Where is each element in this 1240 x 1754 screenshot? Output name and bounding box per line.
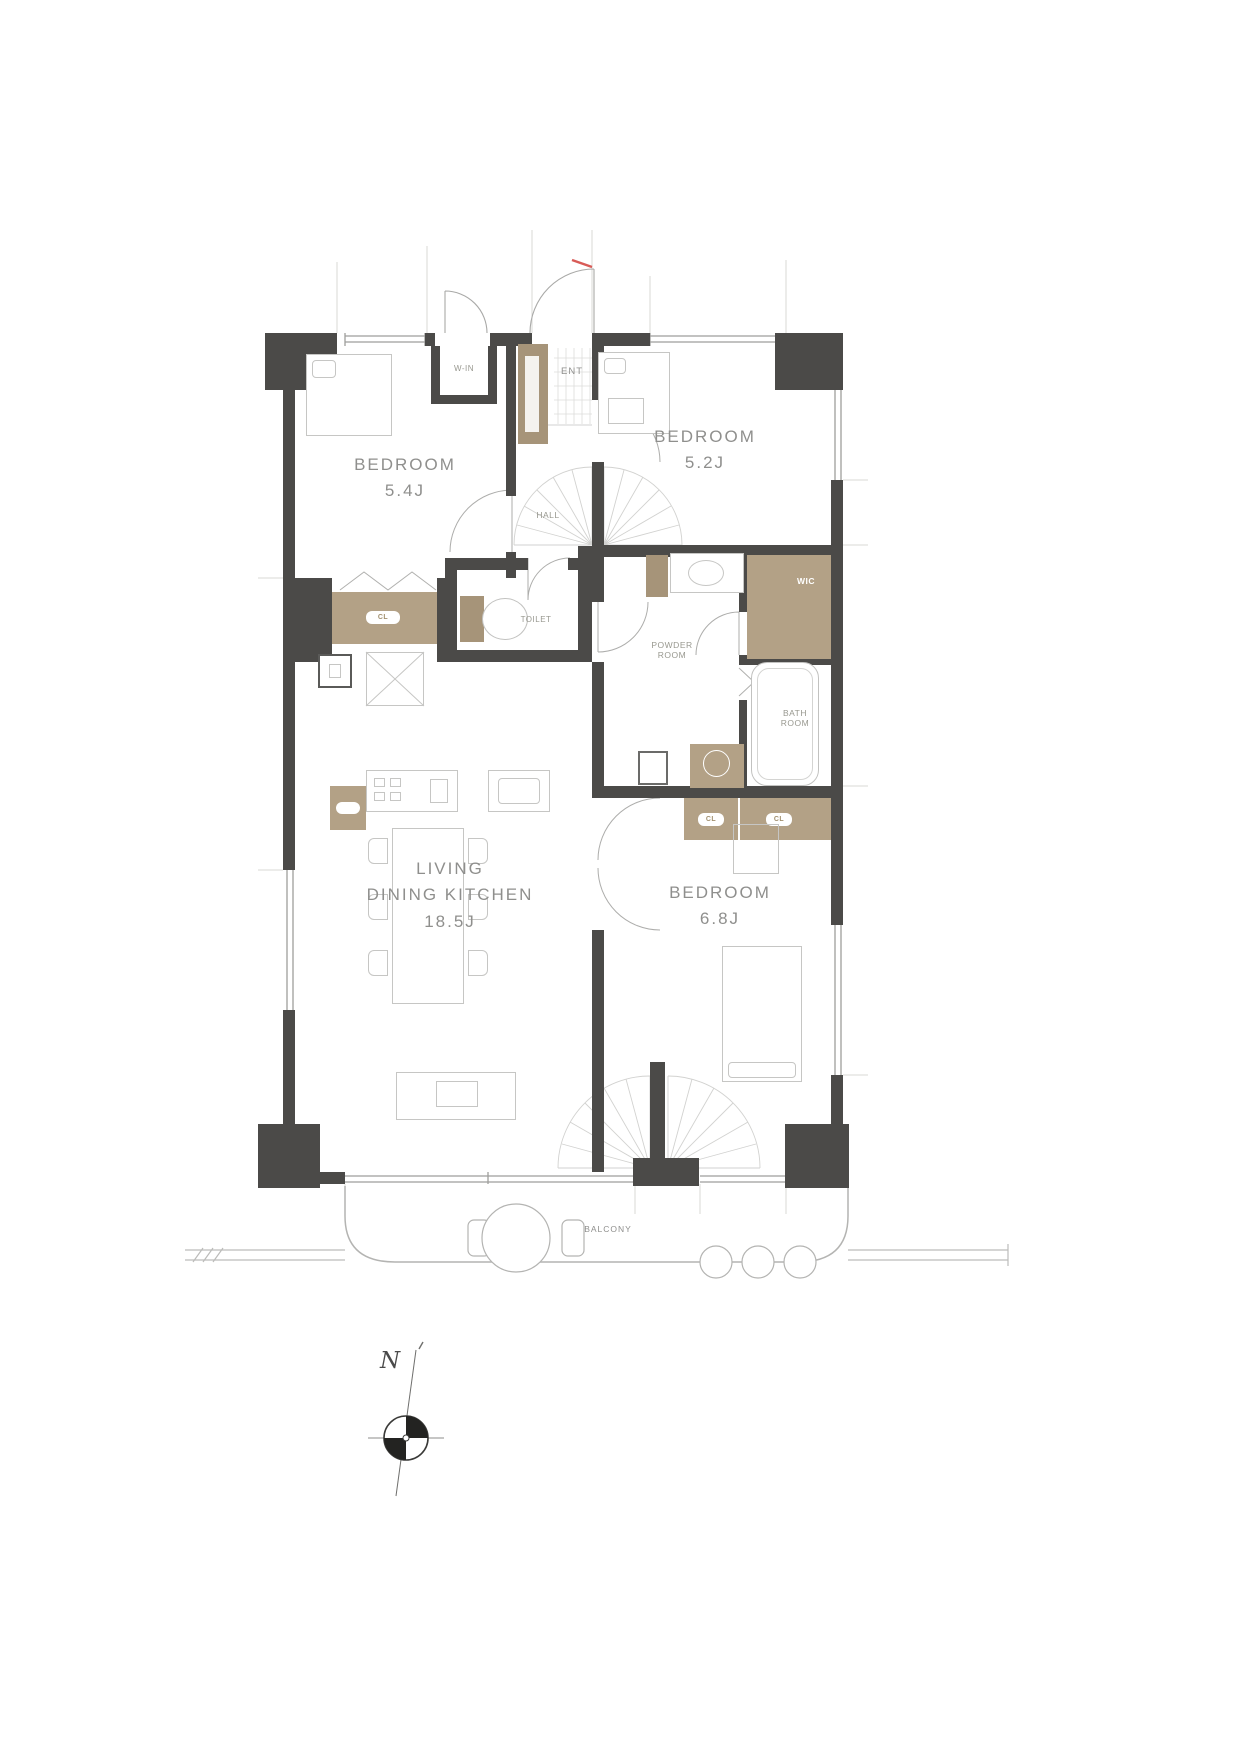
entrance-door-accent [572, 260, 592, 267]
wall-toilet-top-b [568, 558, 578, 570]
wall-center-mid [592, 462, 604, 558]
meter-box-inner [329, 664, 341, 678]
wall-block-left [283, 578, 332, 662]
walk-in-storage-label: W-IN [436, 364, 492, 374]
shoe-cabinet-strip [525, 356, 539, 432]
pillow-bedroom-c [728, 1062, 796, 1078]
bedroom-c-label: BEDROOM 6.8J [645, 880, 795, 933]
wall-ldk-powder [592, 662, 604, 786]
plan-linework [0, 0, 1240, 1754]
toilet-tank [460, 596, 484, 642]
closet-c1-label: CL [698, 813, 724, 826]
desk-bedroom-b [608, 398, 644, 424]
powder-room-line2: ROOM [612, 650, 732, 660]
balcony-planters [700, 1246, 816, 1278]
wic-label: WIC [786, 576, 826, 586]
wall-right-1 [831, 333, 843, 385]
wall-top-3 [592, 333, 650, 346]
stove-burner-2 [390, 778, 401, 787]
wall-toilet-left [445, 558, 457, 662]
bedroom-b-size: 5.2J [630, 450, 780, 476]
ldk-line2: DINING KITCHEN [355, 882, 545, 908]
balcony-label: BALCONY [568, 1224, 648, 1235]
bedroom-a-label: BEDROOM 5.4J [330, 452, 480, 505]
walk-in-closet [747, 555, 831, 659]
tv-board-inner [436, 1081, 478, 1107]
door-arcs-exterior [445, 269, 594, 333]
bath-room-line1: BATH [745, 708, 845, 718]
ldk-size: 18.5J [355, 909, 545, 935]
stove-burner-4 [390, 792, 401, 801]
dining-chair-l3 [368, 950, 388, 976]
kitchen-sink [498, 778, 540, 804]
desk-bedroom-c [733, 824, 779, 874]
stove-burner-3 [374, 792, 385, 801]
pillow-bedroom-a [312, 360, 336, 378]
dining-chair-r3 [468, 950, 488, 976]
hall-label: HALL [518, 510, 578, 520]
compass-north-label: N [380, 1348, 400, 1374]
ldk-line1: LIVING [355, 856, 545, 882]
wall-ldk-bedroom-c [592, 930, 604, 1172]
bedroom-b-label: BEDROOM 5.2J [630, 424, 780, 477]
balcony-table-set [468, 1204, 584, 1272]
bedroom-c-name: BEDROOM [645, 880, 795, 906]
wall-bedroom-a-right-upper [506, 346, 516, 496]
wall-bottom-right [786, 1172, 843, 1184]
wall-toilet-right [578, 546, 592, 662]
wall-toilet-bottom [445, 650, 578, 662]
powder-room-line1: POWDER [612, 640, 732, 650]
toilet-label: TOILET [500, 615, 572, 625]
bedroom-b-name: BEDROOM [630, 424, 780, 450]
wall-top-1 [425, 333, 435, 346]
walk-in-storage-box [431, 346, 497, 404]
wall-right-3 [831, 1075, 843, 1184]
pillar-bottom-center [633, 1158, 699, 1186]
stove-burner-1 [374, 778, 385, 787]
bath-room-label: BATH ROOM [745, 708, 845, 728]
neighbor-balcony-lines [185, 1244, 1008, 1266]
ldk-label: LIVING DINING KITCHEN 18.5J [355, 856, 545, 935]
kitchen-counter-detail [430, 779, 448, 803]
closet-a-label: CL [366, 611, 400, 624]
powder-room-label: POWDER ROOM [612, 640, 732, 660]
pillow-bedroom-b [604, 358, 626, 374]
wall-left-lower [283, 1010, 295, 1184]
bedroom-a-size: 5.4J [330, 478, 480, 504]
powder-cabinet [646, 555, 668, 597]
bath-room-line2: ROOM [745, 718, 845, 728]
fridge-space [366, 652, 424, 706]
entrance-label: ENT [540, 366, 604, 378]
wall-toilet-top-a [445, 558, 528, 570]
wall-balcony-stem [650, 1062, 665, 1162]
bedroom-c-size: 6.8J [645, 906, 795, 932]
vanity-basin-icon [703, 750, 730, 777]
powder-basin [688, 560, 724, 586]
floor-plan-page: CL WIC CL CL W-IN [0, 0, 1240, 1754]
washing-machine-space [638, 751, 668, 785]
bedroom-a-name: BEDROOM [330, 452, 480, 478]
wall-bottom-left [283, 1172, 345, 1184]
kitchen-cabinet-pill [336, 802, 360, 814]
